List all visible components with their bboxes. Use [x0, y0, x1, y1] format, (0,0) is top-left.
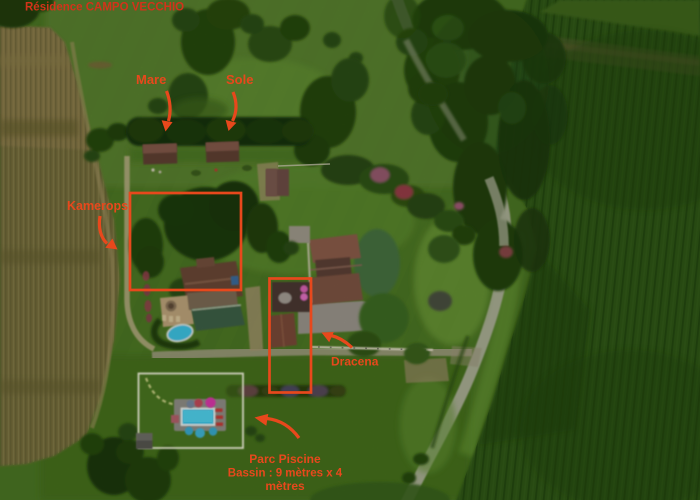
svg-text:Bassin : 9 mètres x 4: Bassin : 9 mètres x 4 — [228, 468, 343, 480]
svg-text:Mare: Mare — [136, 72, 166, 87]
svg-text:Parc Piscine: Parc Piscine — [249, 452, 321, 466]
svg-text:Résidence CAMPO VECCHIO: Résidence CAMPO VECCHIO — [25, 2, 184, 14]
svg-text:Kamerops: Kamerops — [67, 199, 128, 213]
svg-text:Dracena: Dracena — [331, 355, 379, 369]
svg-text:Sole: Sole — [226, 72, 253, 87]
svg-text:mètres: mètres — [265, 479, 305, 493]
